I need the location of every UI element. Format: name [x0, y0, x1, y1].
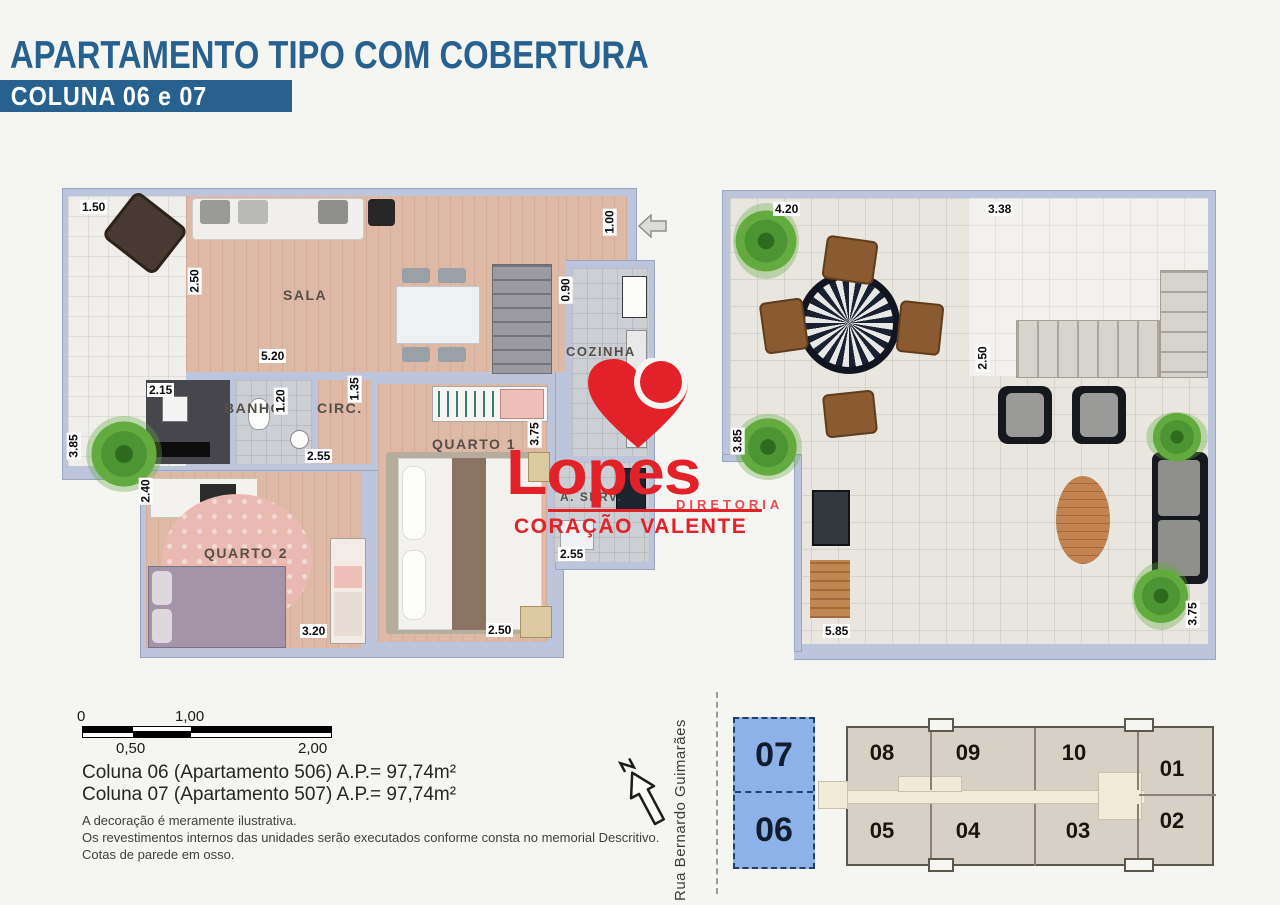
page-subtitle-bar: COLUNA 06 e 07 [0, 80, 292, 112]
building-notch [928, 858, 954, 872]
dim-label: 2.50 [976, 344, 990, 371]
wardrobe-drawers [334, 592, 362, 636]
room-label-cozinha: COZINHA [566, 344, 636, 359]
stairs [492, 264, 552, 374]
building-notch [1124, 718, 1154, 732]
plant-icon [1132, 562, 1190, 630]
deck-mat [810, 560, 850, 618]
unit-divider [1034, 728, 1036, 790]
disclaimer-line-1: A decoração é meramente ilustrativa. [82, 812, 297, 829]
room-label-quarto1: QUARTO 1 [432, 436, 516, 452]
dim-label: 1.20 [274, 387, 288, 414]
pillow [152, 571, 172, 605]
unit-09-label: 09 [948, 740, 988, 766]
brand-name: Lopes [506, 440, 700, 504]
sofa-cushion [1158, 460, 1200, 516]
fridge [622, 276, 647, 318]
dim-label: 1.00 [603, 208, 617, 235]
dim-label: 2.50 [188, 267, 202, 294]
dim-label: 2.55 [305, 449, 332, 463]
dim-label: 1.50 [80, 200, 107, 214]
scale-label-050: 0,50 [116, 740, 145, 757]
chair [759, 297, 810, 355]
lounge-chair-cushion [1080, 393, 1118, 437]
dining-chair [438, 347, 466, 362]
entry-floor [566, 196, 628, 260]
page-subtitle: COLUNA 06 e 07 [0, 80, 207, 112]
dim-label: 3.20 [300, 624, 327, 638]
building-notch [1124, 858, 1154, 872]
dining-chair [438, 268, 466, 283]
scale-label-200: 2,00 [298, 740, 327, 757]
oval-table [1056, 476, 1110, 564]
scale-label-0: 0 [77, 708, 85, 725]
unit-divider [1139, 794, 1216, 796]
unit-08-label: 08 [862, 740, 902, 766]
unit-03-label: 03 [1058, 818, 1098, 844]
unit-area-line-2: Coluna 07 (Apartamento 507) A.P.= 97,74m… [82, 784, 456, 806]
elevator-lobby [1098, 772, 1142, 820]
unit-07-label: 07 [755, 736, 793, 775]
dining-chair [402, 347, 430, 362]
unit-06: 06 [735, 793, 813, 867]
disclaimer-line-2: Os revestimentos internos das unidades s… [82, 829, 659, 846]
dim-label: 3.85 [67, 432, 81, 459]
scale-bar-bottom [82, 732, 332, 738]
dim-label: 2.50 [486, 623, 513, 637]
page-title: APARTAMENTO TIPO COM COBERTURA [10, 34, 649, 78]
wardrobe-hangers [438, 391, 496, 417]
unit-divider [930, 804, 932, 866]
dim-label: 3.75 [1186, 600, 1200, 627]
plan-cutout [722, 462, 794, 660]
dim-label: 2.55 [558, 547, 585, 561]
wardrobe-drawers [334, 566, 362, 588]
unit-04-label: 04 [948, 818, 988, 844]
wall [794, 454, 802, 652]
shower [162, 396, 188, 422]
nightstand [520, 606, 552, 638]
pillow [402, 550, 426, 620]
sofa-cushion [318, 200, 348, 224]
flyer-canvas: APARTAMENTO TIPO COM COBERTURA COLUNA 06… [0, 0, 1280, 905]
dim-label: 5.85 [823, 624, 850, 638]
unit-10-label: 10 [1054, 740, 1094, 766]
pillow [402, 466, 426, 540]
wardrobe-drawers [500, 389, 544, 419]
unit-divider [1137, 804, 1139, 866]
unit-06-label: 06 [755, 811, 793, 850]
logo-division: DIRETORIA [676, 497, 783, 512]
dim-label: 0.90 [559, 276, 573, 303]
street-dashed-line [716, 692, 718, 894]
dining-table [396, 286, 480, 344]
dim-label: 5.20 [259, 349, 286, 363]
unit-02-label: 02 [1152, 808, 1192, 834]
dim-label: 4.20 [773, 202, 800, 216]
dining-chair [402, 268, 430, 283]
dim-label: 2.40 [139, 477, 153, 504]
unit-divider [1137, 728, 1139, 790]
stairs-landing [1160, 270, 1208, 378]
building-notch [928, 718, 954, 732]
sofa-cushion [200, 200, 230, 224]
chair [822, 389, 878, 438]
room-label-quarto2: QUARTO 2 [204, 545, 288, 561]
unit-divider [1034, 804, 1036, 866]
chair [895, 300, 944, 356]
logo-tagline: CORAÇÃO VALENTE [514, 515, 747, 539]
highlight-unit-block: 07 06 [733, 717, 815, 869]
round-table [798, 272, 900, 374]
sofa-cushion [238, 200, 268, 224]
unit-area-line-1: Coluna 06 (Apartamento 506) A.P.= 97,74m… [82, 762, 456, 784]
dim-label: 1.35 [348, 375, 362, 402]
north-arrow-icon [612, 750, 684, 834]
room-label-sala: SALA [283, 287, 327, 303]
unit-05-label: 05 [862, 818, 902, 844]
chair [821, 235, 879, 286]
unit-divider [930, 728, 932, 790]
stairs [1016, 320, 1160, 378]
pillow [152, 609, 172, 643]
bed-runner [452, 458, 486, 630]
scale-label-100: 1,00 [175, 708, 204, 725]
plant-icon [1146, 412, 1208, 462]
corridor-link [818, 781, 848, 809]
disclaimer-line-3: Cotas de parede em osso. [82, 846, 234, 863]
side-table [368, 199, 395, 226]
dim-label: 2.15 [147, 383, 174, 397]
sink [290, 430, 309, 449]
dim-label: 3.38 [986, 202, 1013, 216]
grill [812, 490, 850, 546]
lounge-chair-cushion [1006, 393, 1044, 437]
unit-07: 07 [735, 719, 813, 793]
dim-label: 3.85 [731, 427, 745, 454]
entrance-arrow-icon [638, 214, 668, 238]
unit-01-label: 01 [1152, 756, 1192, 782]
